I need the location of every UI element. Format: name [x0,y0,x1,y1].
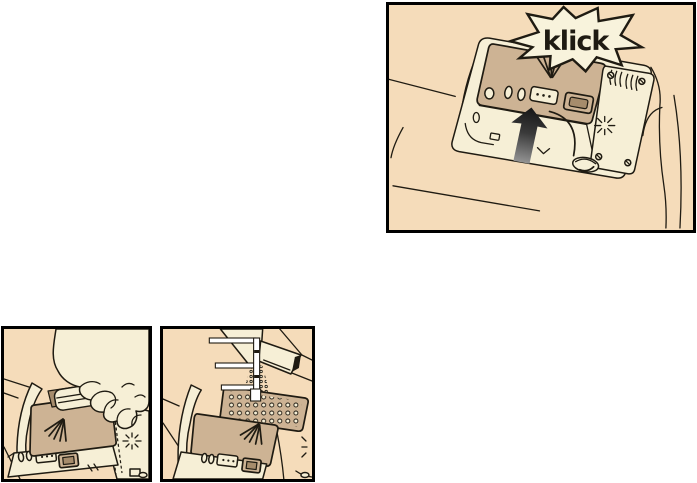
insert-tab-illustration [4,329,149,479]
figure-pour-detergent-powder [160,326,315,482]
funnel-notch [251,389,261,401]
figure-insert-detergent-tab [1,326,152,482]
figure-close-dispenser-lid: klick [386,2,696,233]
lid-latch [563,92,594,114]
close-dispenser-illustration: klick [389,5,693,230]
hinge-detail [301,473,309,478]
lid-latch [242,458,262,473]
manual-page: klick [0,0,697,483]
klick-label: klick [543,26,611,57]
pour-powder-illustration [163,329,312,479]
lid-latch [58,453,78,468]
